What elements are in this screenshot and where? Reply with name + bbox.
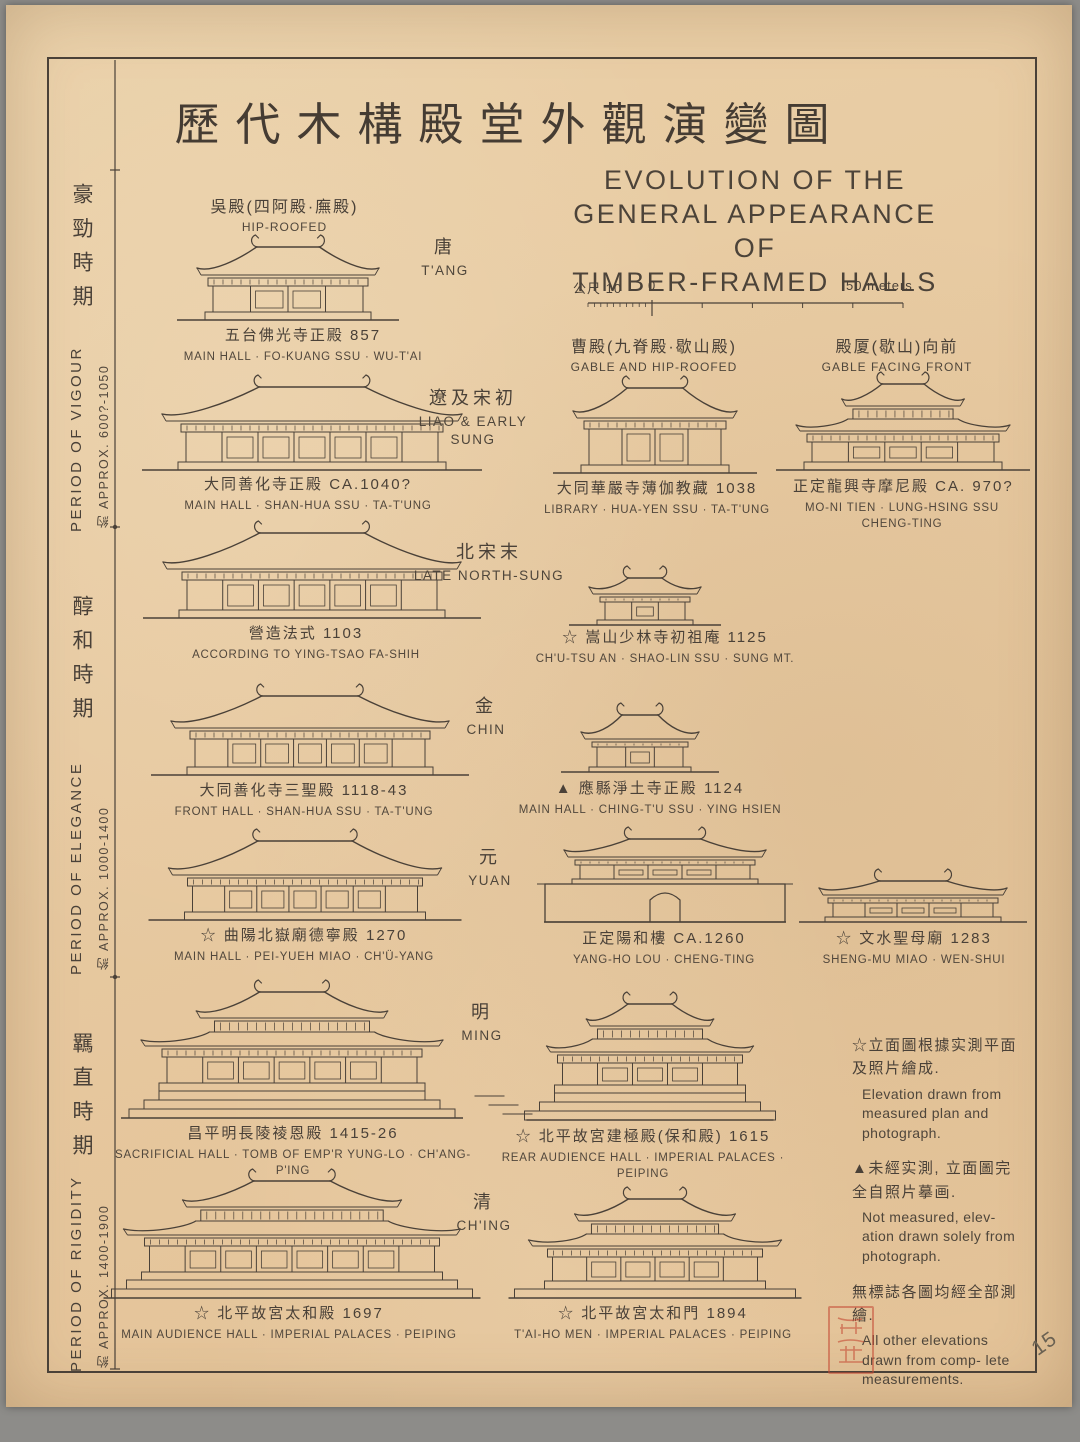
- star-symbol: ☆: [852, 1037, 869, 1054]
- scale-left-label: 公尺 10: [573, 278, 622, 297]
- caption-changling-hall: 昌平明長陵祾恩殿 1415-26SACRIFICIAL HALL · TOMB …: [112, 1122, 474, 1179]
- subtitle-line-1: EVOLUTION OF THE: [560, 163, 950, 197]
- legend: ☆立面圖根據实測平面及照片繪成. Elevation drawn from me…: [852, 1034, 1022, 1390]
- rooftype-hip: 吳殿(四阿殿·廡殿) HIP-ROOFED: [172, 193, 397, 234]
- era-liao-early-sung: 遼及宋初LIAO & EARLY SUNG: [412, 384, 534, 449]
- caption-shengmu-miao: ☆ 文水聖母廟 1283SHENG-MU MIAO · WEN-SHUI: [803, 927, 1025, 968]
- period-elegance-en: PERIOD OF ELEGANCE: [68, 737, 85, 975]
- caption-chingtu-hall: ▲ 應縣淨土寺正殿 1124MAIN HALL · CHING-T'U SSU …: [502, 777, 798, 818]
- scale-zero-label: 0: [648, 278, 656, 293]
- era-late-north-sung: 北宋末LATE NORTH-SUNG: [398, 538, 580, 585]
- period-elegance-cn: 醇和時期: [66, 595, 96, 755]
- era-ching: 清CH'ING: [436, 1188, 532, 1235]
- era-yuan: 元YUAN: [444, 843, 536, 890]
- caption-paoho-tien: ☆ 北平故宮建極殿(保和殿) 1615REAR AUDIENCE HALL · …: [492, 1125, 794, 1182]
- page-title: 歷代木構殿堂外觀演變圖: [140, 88, 880, 153]
- scale-right-label: 50 meters: [846, 278, 913, 293]
- period-vigour-approx: 約 APPROX. 600?-1050: [94, 238, 113, 528]
- caption-peiyueh-miao: ☆ 曲陽北嶽廟德寧殿 1270MAIN HALL · PEI-YUEH MIAO…: [148, 924, 460, 965]
- caption-taiho-men: ☆ 北平故宮太和門 1894T'AI-HO MEN · IMPERIAL PAL…: [502, 1302, 804, 1343]
- caption-shanhua-main-hall: 大同善化寺正殿 CA.1040?MAIN HALL · SHAN-HUA SSU…: [162, 473, 454, 514]
- triangle-symbol: ▲: [852, 1160, 868, 1177]
- period-vigour-en: PERIOD OF VIGOUR: [68, 322, 85, 532]
- rooftype-gable-front: 殿厦(歇山)向前 GABLE FACING FRONT: [788, 333, 1006, 374]
- caption-foguang-hall: 五台佛光寺正殿 857MAIN HALL · FO-KUANG SSU · WU…: [172, 324, 434, 365]
- legend-item-triangle: ▲未經实測, 立面圖完全自照片摹画. Not measured, elev- a…: [852, 1157, 1022, 1266]
- title-chinese: 歷代木構殿堂外觀演變圖: [174, 99, 845, 150]
- caption-chutsu-an: ☆ 嵩山少林寺初祖庵 1125CH'U-TSU AN · SHAO-LIN SS…: [522, 626, 808, 667]
- legend-item-unmarked: 無標誌各圖均經全部測繪. All other elevations drawn …: [852, 1281, 1022, 1390]
- period-rigidity-cn: 羈直時期: [66, 1032, 96, 1192]
- caption-huayen-library: 大同華嚴寺薄伽教藏 1038LIBRARY · HUA-YEN SSU · TA…: [538, 477, 776, 518]
- era-ming: 明MING: [436, 998, 528, 1045]
- caption-shanhua-front-hall: 大同善化寺三聖殿 1118-43FRONT HALL · SHAN-HUA SS…: [158, 779, 450, 820]
- era-chin: 金CHIN: [440, 692, 532, 739]
- photograph-of-poster: { "title": { "cn": "歷代木構殿堂外觀演變圖" }, "sub…: [0, 0, 1080, 1442]
- legend-item-star: ☆立面圖根據实測平面及照片繪成. Elevation drawn from me…: [852, 1034, 1022, 1143]
- period-elegance-approx: 約 APPROX. 1000-1400: [94, 648, 113, 970]
- period-vigour-cn: 豪勁時期: [66, 183, 96, 343]
- era-tang: 唐T'ANG: [400, 233, 490, 280]
- caption-moni-tien: 正定龍興寺摩尼殿 CA. 970?MO-NI TIEN · LUNG-HSING…: [793, 475, 1011, 532]
- period-rigidity-en: PERIOD OF RIGIDITY: [68, 1172, 85, 1372]
- rooftype-gable-hip: 曹殿(九脊殿·歇山殿) GABLE AND HIP-ROOFED: [538, 333, 770, 374]
- caption-yangho-lou: 正定陽和樓 CA.1260YANG-HO LOU · CHENG-TING: [543, 927, 785, 968]
- caption-taiho-tien: ☆ 北平故宮太和殿 1697MAIN AUDIENCE HALL · IMPER…: [108, 1302, 470, 1343]
- red-seal: [828, 1306, 874, 1374]
- subtitle-line-2: GENERAL APPEARANCE OF: [560, 197, 950, 265]
- caption-yingtsao-fashih: 營造法式 1103ACCORDING TO YING-TSAO FA-SHIH: [160, 622, 452, 663]
- period-rigidity-approx: 約 APPROX. 1400-1900: [94, 1082, 113, 1368]
